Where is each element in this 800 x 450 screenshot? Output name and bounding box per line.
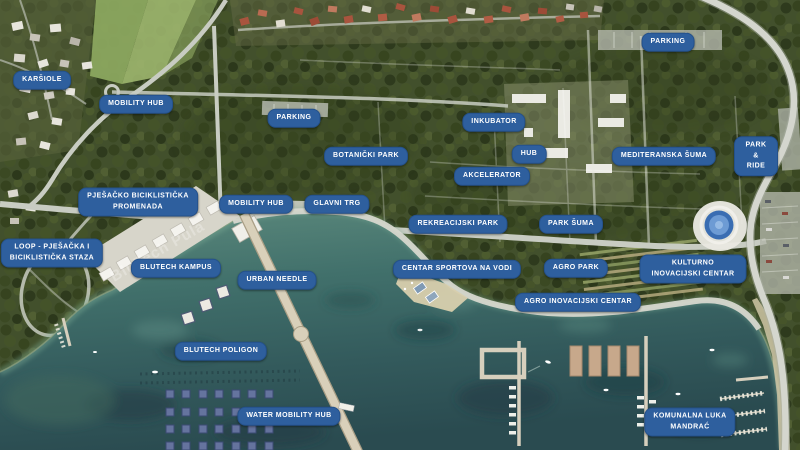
residential-north	[230, 0, 604, 46]
map-label-centar-sportova-na-vodi: CENTAR SPORTOVA NA VODI	[393, 260, 521, 279]
map-label-urban-needle: URBAN NEEDLE	[237, 271, 316, 290]
map-label-inkubator: INKUBATOR	[462, 113, 525, 132]
map-label-glavni-trg: GLAVNI TRG	[304, 195, 369, 214]
map-label-pjesacko-biciklisticka-promenada: PJEŠAČKO BICIKLISTIČKA PROMENADA	[78, 188, 198, 217]
map-label-karsiole: KARŠIOLE	[13, 71, 71, 90]
map-label-water-mobility-hub: WATER MOBILITY HUB	[237, 407, 340, 426]
cultural-center-building	[693, 201, 747, 251]
map-label-blutech-kampus: BLUTECH KAMPUS	[131, 259, 221, 278]
east-parking	[760, 192, 800, 294]
map-label-akcelerator: AKCELERATOR	[454, 167, 530, 186]
map-label-botanicki-park: BOTANIČKI PARK	[324, 147, 408, 166]
map-label-parking-north: PARKING	[642, 33, 695, 52]
innovation-campus	[504, 80, 634, 206]
map-label-mobility-hub-central: MOBILITY HUB	[219, 195, 293, 214]
map-label-hub: HUB	[512, 145, 547, 164]
map-label-park-and-ride: PARK & RIDE	[734, 136, 778, 176]
map-render: BluTech Pula	[0, 0, 800, 450]
map-label-rekreacijski-park: REKREACIJSKI PARK	[408, 215, 507, 234]
map-label-mediteranska-suma: MEDITERANSKA ŠUMA	[612, 147, 716, 166]
map-label-kulturno-inovacijski-centar: KULTURNO INOVACIJSKI CENTAR	[640, 255, 747, 284]
map-label-mobility-hub-north: MOBILITY HUB	[99, 95, 173, 114]
map-label-parking-west: PARKING	[268, 109, 321, 128]
map-label-agro-park: AGRO PARK	[544, 259, 608, 278]
map-label-komunalna-luka-mandrac: KOMUNALNA LUKA MANDRAĆ	[644, 408, 735, 437]
map-label-loop-staza: LOOP - PJEŠAČKA I BICIKLISTIČKA STAZA	[1, 239, 103, 268]
masterplan-map: BluTech Pula	[0, 0, 800, 450]
map-label-agro-inovacijski-centar: AGRO INOVACIJSKI CENTAR	[515, 293, 641, 312]
map-label-park-suma: PARK ŠUMA	[539, 215, 603, 234]
map-label-blutech-poligon: BLUTECH POLIGON	[175, 342, 267, 361]
